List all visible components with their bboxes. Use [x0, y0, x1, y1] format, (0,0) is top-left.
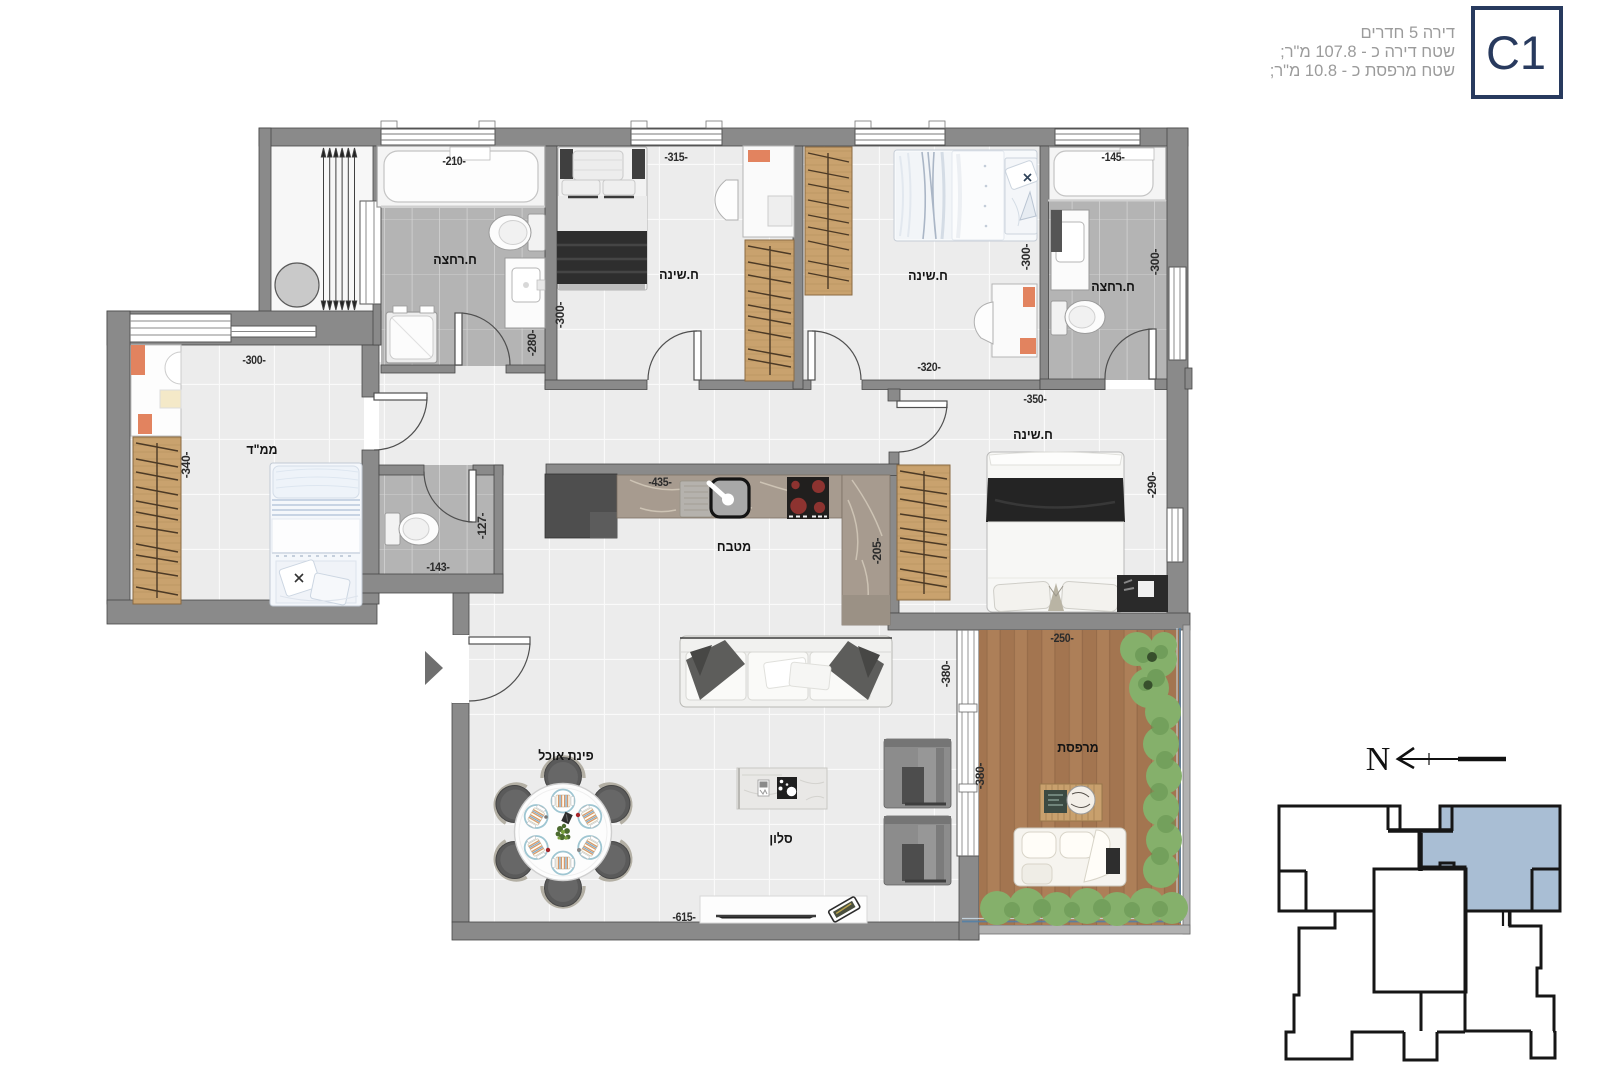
svg-text:N: N — [1366, 741, 1391, 778]
svg-text:-210-: -210- — [442, 155, 466, 168]
svg-text:-380-: -380- — [973, 762, 987, 789]
svg-text:שטח דירה כ - 107.8 מ"ר;: שטח דירה כ - 107.8 מ"ר; — [1280, 43, 1455, 61]
svg-text:פינת אוכל: פינת אוכל — [538, 748, 594, 764]
svg-text:-145-: -145- — [1101, 151, 1125, 164]
svg-text:-280-: -280- — [525, 329, 539, 356]
svg-text:-300-: -300- — [553, 301, 567, 328]
svg-text:מרפסת: מרפסת — [1057, 740, 1098, 756]
svg-text:-250-: -250- — [1050, 632, 1074, 645]
svg-text:-315-: -315- — [664, 151, 688, 164]
svg-text:סלון: סלון — [769, 831, 792, 847]
svg-text:-290-: -290- — [1145, 471, 1159, 498]
svg-text:-300-: -300- — [1148, 248, 1162, 275]
svg-text:-205-: -205- — [870, 537, 884, 564]
svg-text:ח.שינה: ח.שינה — [1013, 427, 1053, 443]
svg-text:-143-: -143- — [426, 561, 450, 574]
svg-text:-340-: -340- — [179, 451, 193, 478]
svg-text:-300-: -300- — [1019, 243, 1033, 270]
svg-text:ח.רחצה: ח.רחצה — [433, 252, 477, 268]
svg-text:-300-: -300- — [242, 354, 266, 367]
svg-text:דירה 5 חדרים: דירה 5 חדרים — [1360, 24, 1455, 42]
svg-text:שטח מרפסת כ - 10.8 מ"ר;: שטח מרפסת כ - 10.8 מ"ר; — [1270, 62, 1455, 80]
svg-text:C1: C1 — [1486, 26, 1546, 79]
svg-text:-350-: -350- — [1023, 393, 1047, 406]
svg-text:-320-: -320- — [917, 361, 941, 374]
svg-text:-615-: -615- — [672, 911, 696, 924]
svg-text:-435-: -435- — [648, 476, 672, 489]
svg-text:ממ"ד: ממ"ד — [246, 442, 277, 458]
svg-text:ח.רחצה: ח.רחצה — [1091, 279, 1135, 295]
svg-text:ח.שינה: ח.שינה — [659, 267, 699, 283]
svg-text:-380-: -380- — [939, 660, 953, 687]
svg-text:ח.שינה: ח.שינה — [908, 268, 948, 284]
svg-text:-127-: -127- — [475, 512, 489, 539]
svg-text:מטבח: מטבח — [717, 539, 751, 555]
